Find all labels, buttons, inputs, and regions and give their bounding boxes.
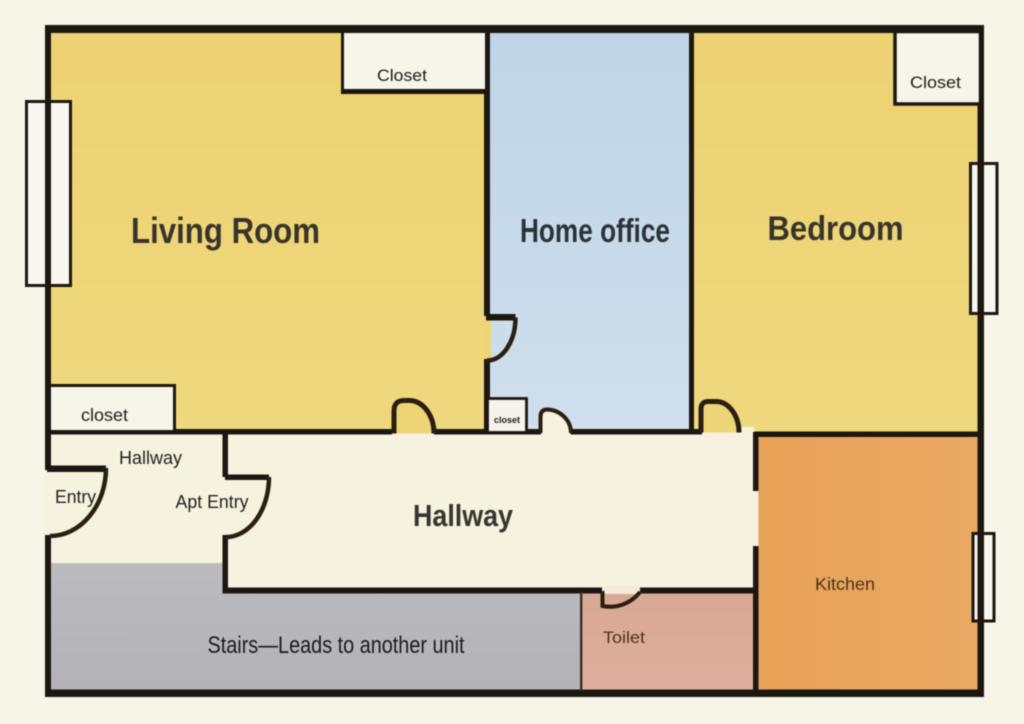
svg-text:Hallway: Hallway bbox=[413, 498, 514, 533]
svg-text:Stairs—Leads to another unit: Stairs—Leads to another unit bbox=[208, 632, 465, 659]
svg-text:Toilet: Toilet bbox=[603, 628, 645, 647]
svg-text:Hallway: Hallway bbox=[119, 447, 183, 468]
svg-text:Apt Entry: Apt Entry bbox=[176, 492, 249, 512]
svg-text:closet: closet bbox=[494, 415, 520, 425]
svg-text:Entry: Entry bbox=[55, 487, 96, 507]
svg-text:Closet: Closet bbox=[910, 73, 961, 92]
svg-text:Living Room: Living Room bbox=[131, 210, 320, 251]
svg-text:Closet: Closet bbox=[377, 66, 427, 85]
svg-text:Kitchen: Kitchen bbox=[815, 574, 875, 594]
svg-text:Home office: Home office bbox=[520, 212, 670, 249]
svg-text:Bedroom: Bedroom bbox=[768, 210, 904, 248]
svg-text:closet: closet bbox=[81, 405, 128, 425]
